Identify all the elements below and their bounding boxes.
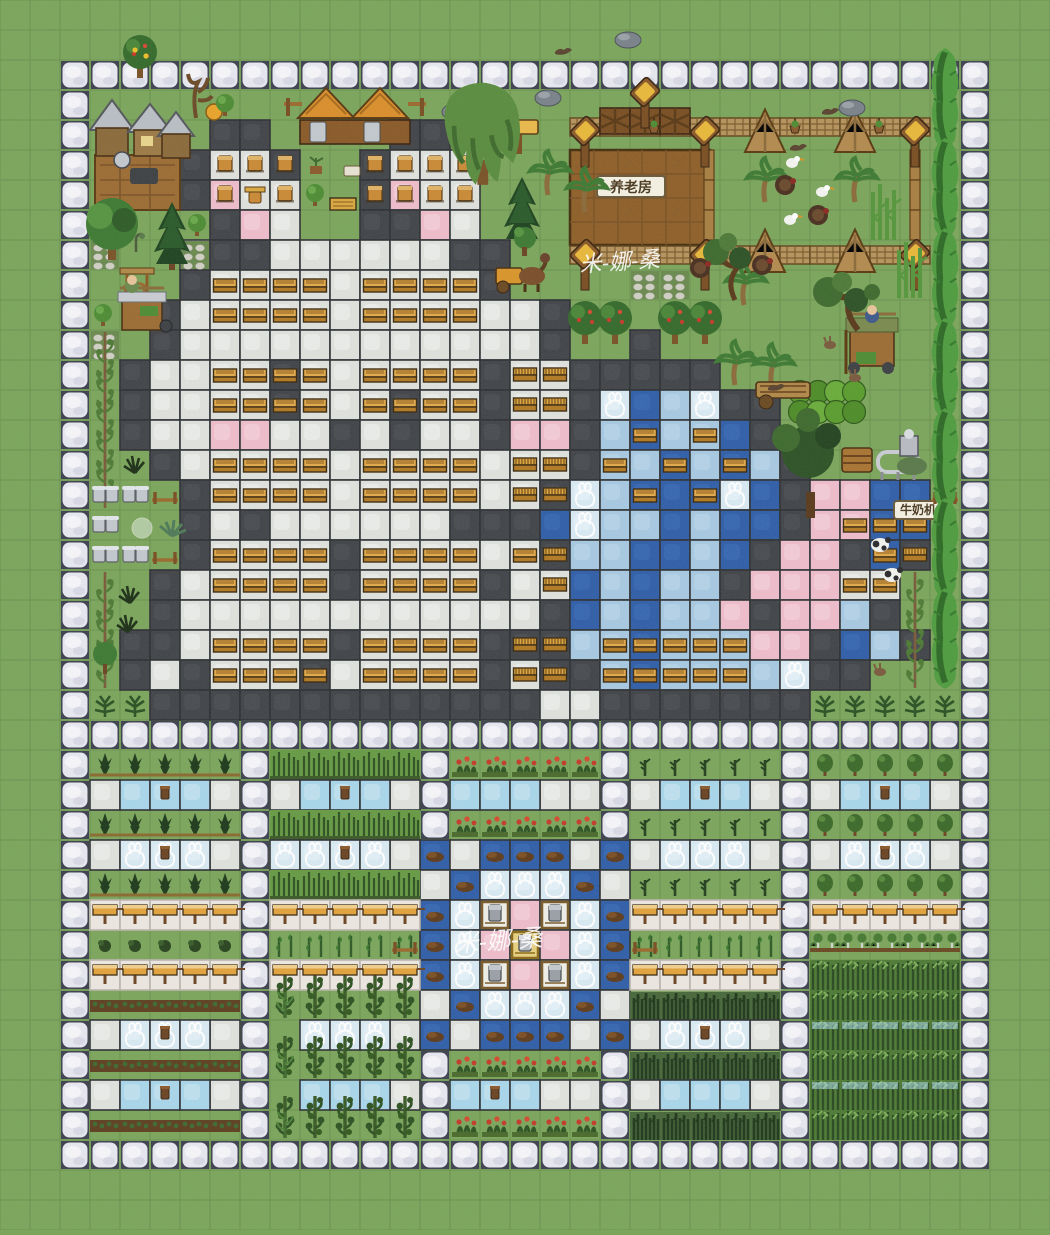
svg-text:牛奶机: 牛奶机 xyxy=(900,502,936,517)
svg-text:养老房: 养老房 xyxy=(609,179,652,195)
